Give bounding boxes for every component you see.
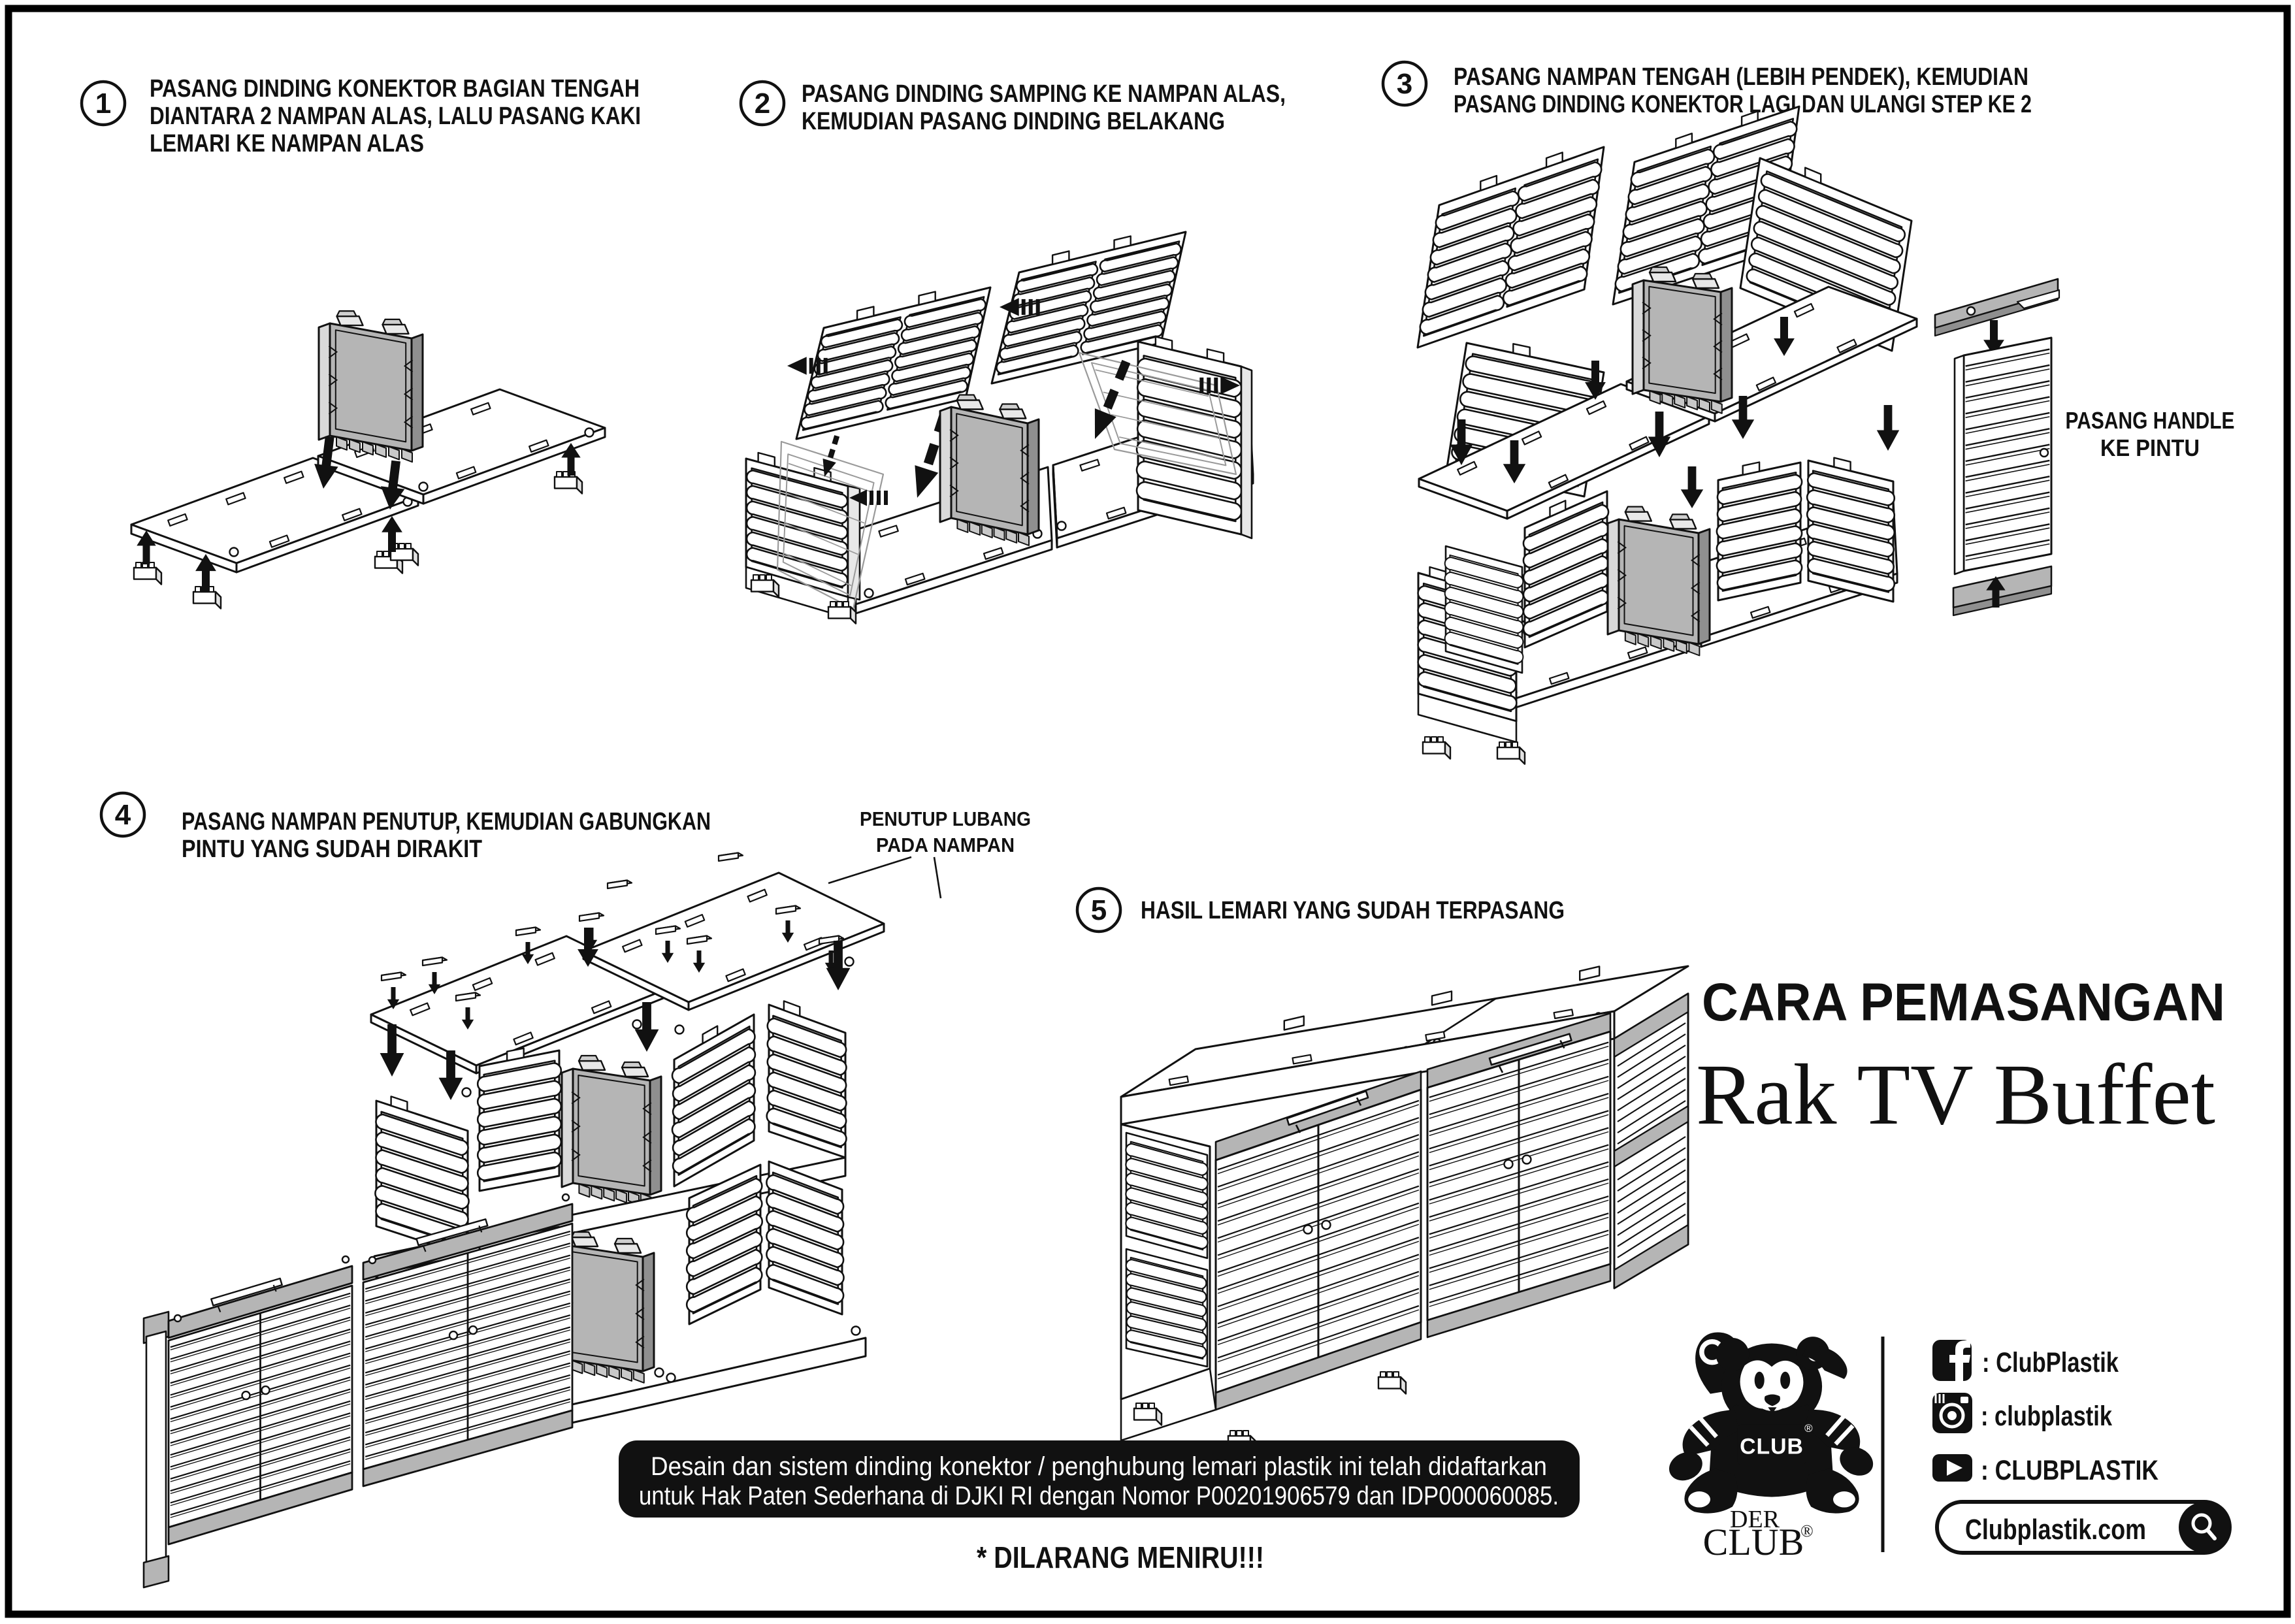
- svg-text:PINTU YANG SUDAH DIRAKIT: PINTU YANG SUDAH DIRAKIT: [182, 836, 482, 863]
- svg-text:1: 1: [95, 88, 111, 120]
- svg-text:PASANG DINDING SAMPING KE NAMP: PASANG DINDING SAMPING KE NAMPAN ALAS,: [802, 80, 1286, 108]
- svg-text:5: 5: [1091, 894, 1107, 926]
- svg-text:CLUB: CLUB: [1740, 1435, 1804, 1459]
- svg-text:Clubplastik.com: Clubplastik.com: [1965, 1514, 2146, 1546]
- svg-text:CLUB: CLUB: [1703, 1521, 1804, 1563]
- svg-text:PENUTUP LUBANG: PENUTUP LUBANG: [860, 807, 1031, 830]
- svg-text:LEMARI KE NAMPAN ALAS: LEMARI KE NAMPAN ALAS: [150, 130, 424, 157]
- svg-text:: ClubPlastik: : ClubPlastik: [1982, 1347, 2119, 1378]
- svg-text:®: ®: [1804, 1422, 1813, 1435]
- svg-text:CARA PEMASANGAN: CARA PEMASANGAN: [1702, 973, 2225, 1032]
- svg-text:®: ®: [1800, 1521, 1814, 1540]
- svg-text:PASANG NAMPAN PENUTUP, KEMUDIA: PASANG NAMPAN PENUTUP, KEMUDIAN GABUNGKA…: [182, 808, 711, 836]
- svg-text:HASIL LEMARI YANG SUDAH TERPAS: HASIL LEMARI YANG SUDAH TERPASANG: [1141, 897, 1565, 924]
- svg-text:2: 2: [755, 88, 770, 120]
- svg-text:PASANG DINDING KONEKTOR LAGI D: PASANG DINDING KONEKTOR LAGI DAN ULANGI …: [1454, 91, 2032, 118]
- svg-text:: clubplastik: : clubplastik: [1981, 1401, 2112, 1432]
- svg-text:4: 4: [115, 799, 131, 831]
- svg-text:Desain dan sistem dinding kone: Desain dan sistem dinding konektor / pen…: [651, 1452, 1547, 1481]
- svg-text:KE PINTU: KE PINTU: [2100, 434, 2200, 461]
- svg-text:PASANG HANDLE: PASANG HANDLE: [2066, 407, 2235, 434]
- svg-text:PASANG DINDING KONEKTOR BAGIAN: PASANG DINDING KONEKTOR BAGIAN TENGAH: [150, 75, 640, 103]
- svg-text:* DILARANG MENIRU!!!: * DILARANG MENIRU!!!: [977, 1540, 1264, 1574]
- svg-text:untuk Hak Paten Sederhana di D: untuk Hak Paten Sederhana di DJKI RI den…: [639, 1482, 1559, 1510]
- svg-text:PASANG NAMPAN TENGAH (LEBIH PE: PASANG NAMPAN TENGAH (LEBIH PENDEK), KEM…: [1454, 63, 2028, 91]
- svg-text:DIANTARA 2 NAMPAN ALAS, LALU P: DIANTARA 2 NAMPAN ALAS, LALU PASANG KAKI: [150, 103, 641, 130]
- svg-text:3: 3: [1397, 68, 1412, 100]
- svg-text:PADA NAMPAN: PADA NAMPAN: [876, 834, 1015, 856]
- svg-text:: CLUBPLASTIK: : CLUBPLASTIK: [1981, 1455, 2158, 1486]
- svg-text:Rak TV Buffet: Rak TV Buffet: [1696, 1046, 2215, 1143]
- svg-text:KEMUDIAN PASANG DINDING BELAKA: KEMUDIAN PASANG DINDING BELAKANG: [802, 108, 1225, 135]
